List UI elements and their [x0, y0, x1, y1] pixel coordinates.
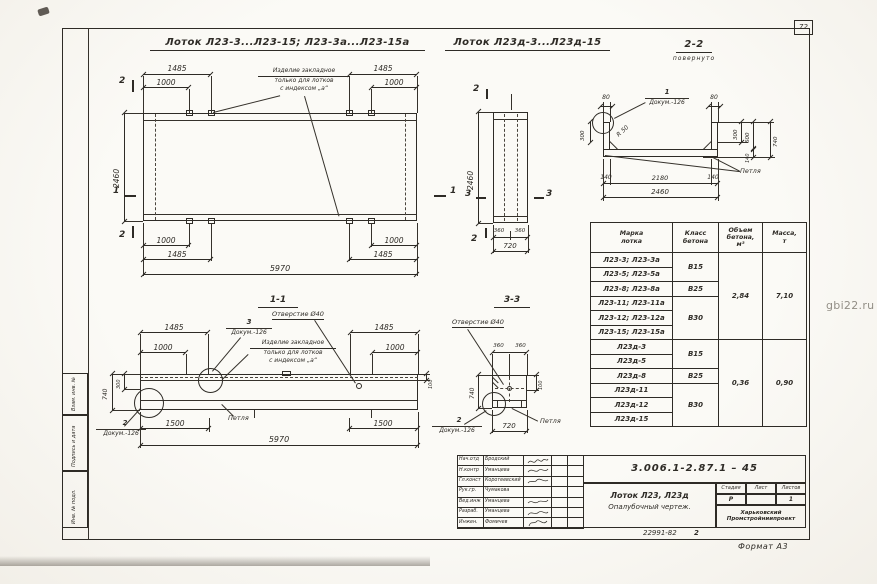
stamp-name: Бродский	[484, 456, 524, 466]
s33-tick	[521, 400, 522, 408]
dim-line	[590, 122, 591, 142]
footer-doc-code-sheet: 2	[694, 530, 699, 537]
dim-line	[143, 245, 189, 246]
stage-label: Стадия	[721, 486, 740, 491]
detail-circle	[134, 388, 164, 418]
ext-line	[124, 113, 143, 114]
drawing-title-cell: Лоток Л23, Л23д Опалубочный чертеж.	[583, 483, 716, 528]
dim-label: 2180	[643, 175, 677, 182]
dim-line	[753, 122, 754, 149]
scanned-drawing-sheet: gbi22.ru 72 Взам. инв. № Подпись и дата …	[0, 0, 877, 584]
stamp-name: Уманцева	[484, 507, 524, 517]
stamp-role: Рук.гр.	[458, 487, 484, 497]
signature-cell	[524, 476, 552, 486]
plan2-centerline	[517, 114, 518, 221]
title-section-3-3: 3-3	[494, 296, 530, 308]
callout-doc: Докум.-126	[226, 330, 272, 336]
section-mark-line	[486, 89, 488, 99]
sheet-label-cell: Лист	[746, 483, 776, 494]
watermark: gbi22.ru	[826, 299, 874, 312]
dim-label: 1000	[371, 79, 417, 87]
dim-label: 5970	[255, 265, 305, 273]
dim-label: 360	[510, 229, 530, 235]
hole-label: Отверстие Ø40	[272, 311, 324, 320]
ext-line	[527, 354, 528, 375]
table-cell-class: В15	[673, 340, 719, 369]
ext-line	[211, 76, 212, 113]
dim-label: 1500	[148, 420, 202, 428]
loop-label: Петля	[740, 168, 761, 175]
table-cell-mark: Л23-8; Л23-8а	[591, 282, 673, 297]
dim-label: 1485	[150, 251, 204, 259]
dim-label: 720	[495, 243, 525, 250]
dim-label: 140	[703, 175, 723, 181]
stamp-name: Чумакова	[484, 487, 524, 497]
ext-line	[143, 223, 144, 276]
table-cell-volume: 2,84	[719, 253, 763, 340]
margin-box-1-label: Взам. инв. №	[72, 377, 77, 411]
dim-line	[124, 374, 125, 389]
drawing-title-line1: Лоток Л23, Л23д	[584, 492, 715, 500]
table-cell-mark: Л23-12; Л23-12а	[591, 311, 673, 326]
dim-label: 1500	[356, 420, 410, 428]
hole-label: Отверстие Ø40	[452, 319, 504, 328]
plan1-outline	[143, 113, 417, 221]
section-mark-1: 1	[113, 187, 119, 196]
stamp-role: Н.контр	[458, 466, 484, 476]
dim-line	[143, 74, 211, 75]
dim-line	[350, 332, 418, 333]
ext-line	[349, 418, 350, 432]
embed-plate	[282, 371, 291, 376]
table-cell-mark: Л23-3; Л23-3а	[591, 253, 673, 268]
dim-label: 80	[706, 95, 722, 101]
callout-number: 1	[645, 89, 689, 96]
dim-line	[536, 375, 537, 390]
stamp-role: Вед.инж	[458, 497, 484, 507]
dim-line	[600, 106, 613, 107]
dim-line	[349, 74, 417, 75]
ext-line	[112, 374, 140, 375]
plan2-axis-arrow	[511, 94, 512, 110]
dim-label: 140	[596, 175, 616, 181]
dim-label: 300	[734, 130, 740, 141]
dim-line	[349, 428, 418, 429]
dim-line	[478, 112, 479, 223]
title-section-1-1: 1-1	[258, 296, 298, 308]
dim-line	[770, 122, 771, 157]
spec-table: Марка лотка Класс бетона Объем бетона, м…	[590, 222, 807, 427]
dim-line	[708, 106, 721, 107]
table-cell-mark: Л23д-12	[591, 398, 673, 413]
ext-line	[211, 223, 212, 261]
col-header-mark: Марка лотка	[591, 223, 673, 253]
dim-line	[478, 375, 479, 408]
scan-smudge	[37, 6, 50, 16]
section-mark-3: 3	[546, 190, 552, 199]
dim-label: 740	[774, 137, 780, 148]
dim-label: 1485	[356, 65, 410, 73]
dim-label: 1000	[140, 344, 186, 352]
ext-line	[349, 76, 350, 113]
signature-mark	[527, 509, 549, 517]
table-cell-class: В15	[673, 253, 719, 282]
dim-label: 1485	[357, 324, 411, 332]
table-cell-mark: Л23-11; Л23-11а	[591, 296, 673, 311]
loop-label: Петля	[228, 415, 249, 422]
stage-label-cell: Стадия	[716, 483, 746, 494]
ext-line	[418, 334, 419, 374]
ext-line	[718, 122, 774, 123]
dim-label: 1485	[356, 251, 410, 259]
ext-line	[718, 102, 719, 122]
dim-label: 360	[489, 229, 509, 235]
section-mark-line	[476, 197, 486, 199]
dim-line	[493, 237, 528, 238]
organization-cell: Харьковский Промстройниипроект	[716, 505, 806, 528]
dim-line	[124, 113, 125, 221]
dim-label: 720	[494, 423, 524, 430]
scan-edge-shadow	[0, 556, 430, 566]
signature-mark	[527, 477, 549, 485]
ext-line	[478, 375, 492, 376]
dim-line	[603, 183, 718, 184]
stamp-name: Уманцева	[484, 466, 524, 476]
dim-line	[371, 245, 417, 246]
dim-label: 360	[510, 344, 531, 350]
ext-line	[124, 221, 143, 222]
detail-circle	[198, 368, 223, 393]
ext-line	[140, 334, 141, 374]
title-section-2-2: 2-2	[676, 40, 712, 53]
detail-circle	[482, 392, 506, 416]
dim-label: 1000	[143, 237, 189, 245]
s11-ledge-line	[140, 380, 418, 381]
sheets-label: Листов	[782, 486, 801, 491]
dim-label: 1485	[147, 324, 201, 332]
col-header-volume: Объем бетона, м³	[719, 223, 763, 253]
stamp-role: Инжен.	[458, 518, 484, 528]
s11-centerline	[140, 377, 418, 378]
plan1-bottom-flange-line	[143, 214, 417, 215]
section-mark-line	[485, 228, 487, 238]
section-mark-1: 1	[450, 187, 456, 196]
dim-line	[753, 149, 754, 157]
dim-line	[140, 428, 209, 429]
sheets-value-cell: 1	[776, 494, 806, 505]
table-cell-volume: 0,36	[719, 340, 763, 427]
stamp-role: Нач.отд	[458, 456, 484, 466]
signature-cell	[524, 466, 552, 476]
section-mark-line	[132, 80, 134, 92]
signature-cell	[524, 497, 552, 507]
stamp-name: Фомичев	[484, 518, 524, 528]
plan1-top-flange-line	[143, 120, 417, 121]
sheet-value-cell	[746, 494, 776, 505]
dim-label: 2460	[467, 171, 475, 190]
ext-line	[492, 354, 493, 375]
callout-doc: Докум.-126	[645, 100, 689, 106]
callout-number: 3	[226, 319, 272, 326]
detail-circle	[592, 112, 614, 134]
signature-cell	[524, 518, 552, 528]
col-header-mass: Масса, т	[763, 223, 807, 253]
organization-name: Харьковский Промстройниипроект	[727, 511, 796, 522]
section-2-2-note: повернуто	[666, 56, 722, 62]
dim-label: 740	[470, 388, 476, 399]
plan1-embed-note-line1: Изделие закладное	[258, 68, 350, 77]
dim-line	[371, 87, 417, 88]
doc-number-cell: 3.006.1-2.87.1 – 45	[583, 455, 806, 483]
s22-right-wall	[711, 122, 718, 150]
dim-label: 300	[581, 131, 587, 142]
dim-line	[140, 332, 208, 333]
drawing-title-line2: Опалубочный чертеж.	[584, 504, 715, 511]
dim-line	[603, 197, 718, 198]
doc-number: 3.006.1-2.87.1 – 45	[631, 464, 758, 474]
dim-label: 5970	[254, 436, 304, 444]
ext-line	[372, 354, 373, 374]
ext-line	[371, 89, 372, 113]
format-label: Формат А3	[738, 543, 788, 551]
dim-line	[492, 352, 527, 353]
plan1-joint-dash-right	[405, 114, 406, 220]
plan1-joint-dash-left	[155, 114, 156, 220]
table-cell-mark: Л23д-8	[591, 369, 673, 384]
section-mark-line	[132, 226, 134, 238]
dim-label: 360	[488, 344, 509, 350]
plan2-centerline	[504, 114, 505, 221]
ext-line	[509, 354, 510, 378]
section-mark-line	[124, 195, 136, 197]
dim-label: 1485	[150, 65, 204, 73]
stamp-name: Уманцева	[484, 497, 524, 507]
signature-cell	[524, 507, 552, 517]
title-plan2: Лоток Л23д-3...Л23д-15	[445, 38, 610, 51]
sheets-label-cell: Листов	[776, 483, 806, 494]
dim-line	[426, 374, 427, 380]
dim-label: 2460	[640, 189, 680, 196]
dim-label: 80	[598, 95, 614, 101]
sheet-label: Лист	[755, 486, 768, 491]
loop-tick	[371, 410, 372, 418]
dim-line	[741, 122, 742, 142]
signature-cell	[524, 487, 552, 497]
plan2-top-flange-line	[493, 119, 528, 120]
footer-doc-code: 22991-82	[643, 530, 677, 537]
section-mark-3: 3	[465, 190, 471, 199]
callout-doc: Докум.-126	[432, 428, 482, 434]
s11-embed-note-line3: с индексом „а“	[250, 358, 336, 364]
frame-margin-line	[88, 28, 89, 540]
signature-mark	[527, 457, 549, 465]
s22-bottom-slab	[603, 149, 718, 157]
dim-line	[372, 352, 418, 353]
ext-line	[349, 223, 350, 261]
dim-line	[143, 87, 189, 88]
dim-label: 740	[103, 389, 109, 400]
dim-line	[143, 274, 417, 275]
col-header-class: Класс бетона	[673, 223, 719, 253]
plan2-bottom-flange-line	[493, 216, 528, 217]
ext-line	[718, 142, 748, 143]
dim-label: 100	[429, 379, 434, 389]
title-block-signatures: Нач.отдБродский Н.контрУманцева Гл.конст…	[457, 455, 584, 529]
ext-line	[478, 408, 492, 409]
stage-value-cell: Р	[716, 494, 746, 505]
ext-line	[189, 89, 190, 113]
table-cell-mark: Л23-15; Л23-15а	[591, 325, 673, 340]
s11-embed-note-line1: Изделие закладное	[250, 340, 336, 349]
dim-line	[143, 259, 211, 260]
dim-line	[140, 445, 418, 446]
table-cell-mark: Л23-5; Л23-5а	[591, 267, 673, 282]
stamp-name: Коротеевский	[484, 476, 524, 486]
ext-line	[186, 354, 187, 374]
callout-doc: Докум.-126	[96, 431, 146, 437]
section-mark-2: 2	[119, 231, 125, 240]
s11-inner-line	[140, 400, 418, 401]
ext-line	[350, 334, 351, 374]
signature-mark	[527, 519, 549, 527]
dim-label: 1000	[143, 79, 189, 87]
table-cell-mass: 0,90	[763, 340, 807, 427]
table-cell-mark: Л23д-3	[591, 340, 673, 355]
dim-label: 300	[117, 379, 122, 389]
section-mark-line	[534, 197, 544, 199]
stage-value: Р	[729, 497, 733, 503]
table-cell-class: В30	[673, 296, 719, 340]
stamp-role: Гл.конст	[458, 476, 484, 486]
dim-line	[493, 251, 528, 252]
signature-mark	[527, 498, 549, 506]
ext-line	[610, 159, 611, 185]
plan2-outline	[493, 112, 528, 223]
s33-crosshair-v	[509, 377, 510, 402]
section-mark-2: 2	[471, 235, 477, 244]
title-plan1: Лоток Л23-3...Л23-15; Л23-3а...Л23-15а	[150, 38, 425, 51]
dim-line	[112, 374, 113, 410]
section-mark-2: 2	[473, 85, 479, 94]
ext-line	[208, 334, 209, 374]
margin-box-3-label: Инв. № подл.	[72, 490, 77, 525]
dim-line	[349, 259, 417, 260]
dim-label: 140	[746, 153, 751, 163]
stamp-role: Разраб.	[458, 507, 484, 517]
dim-label: 1000	[372, 344, 418, 352]
ext-line	[478, 112, 493, 113]
page-number: 72	[794, 24, 813, 31]
ext-line	[711, 102, 712, 122]
ext-line	[711, 159, 712, 185]
sheets-value: 1	[789, 497, 793, 503]
ext-line	[124, 389, 140, 390]
ext-line	[417, 223, 418, 276]
ext-line	[417, 76, 418, 113]
section-mark-2: 2	[119, 77, 125, 86]
section-mark-line	[434, 195, 446, 197]
dim-label: 600	[746, 133, 752, 144]
loop-label: Петля	[540, 418, 561, 425]
loop-tick	[254, 410, 255, 418]
plan1-embed-note-line3: с индексом „а“	[258, 86, 350, 92]
table-cell-class: В30	[673, 383, 719, 427]
table-cell-mark: Л23д-11	[591, 383, 673, 398]
dim-line	[140, 352, 186, 353]
dim-label: 100	[539, 380, 544, 390]
table-cell-class: В25	[673, 282, 719, 297]
table-cell-class: В25	[673, 369, 719, 384]
table-cell-mass: 7,10	[763, 253, 807, 340]
dim-line	[492, 431, 527, 432]
hole-mark	[356, 383, 362, 389]
plan1-embed-note-line2: только для лотков	[258, 78, 350, 84]
dim-label: 1000	[371, 237, 417, 245]
signature-mark	[527, 467, 549, 475]
table-cell-mark: Л23д-15	[591, 412, 673, 427]
s11-embed-note-line2: только для лотков	[250, 350, 336, 356]
signature-cell	[524, 456, 552, 466]
ext-line	[478, 223, 493, 224]
margin-box-2-label: Подпись и дата	[72, 426, 77, 467]
table-cell-mark: Л23д-5	[591, 354, 673, 369]
